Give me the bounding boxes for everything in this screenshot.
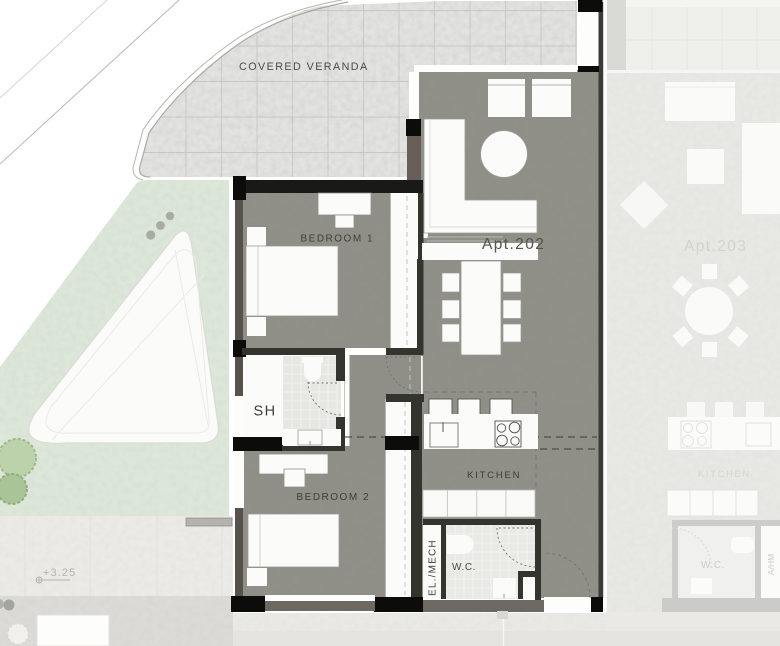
svg-text:SH: SH	[254, 404, 277, 420]
svg-text:W.C.: W.C.	[701, 560, 725, 571]
svg-text:KITCHEN: KITCHEN	[467, 470, 521, 481]
svg-text:+3.25: +3.25	[43, 567, 76, 579]
svg-text:A/HM: A/HM	[766, 554, 776, 575]
svg-text:BEDROOM 1: BEDROOM 1	[301, 234, 375, 245]
svg-text:Apt.202: Apt.202	[482, 236, 545, 253]
svg-text:EL./MECH: EL./MECH	[428, 539, 439, 596]
svg-text:BEDROOM 2: BEDROOM 2	[297, 492, 371, 503]
svg-text:COVERED VERANDA: COVERED VERANDA	[239, 61, 369, 73]
svg-text:KITCHEN: KITCHEN	[698, 469, 751, 480]
svg-text:W.C.: W.C.	[452, 562, 476, 573]
svg-text:Apt.203: Apt.203	[684, 238, 747, 255]
